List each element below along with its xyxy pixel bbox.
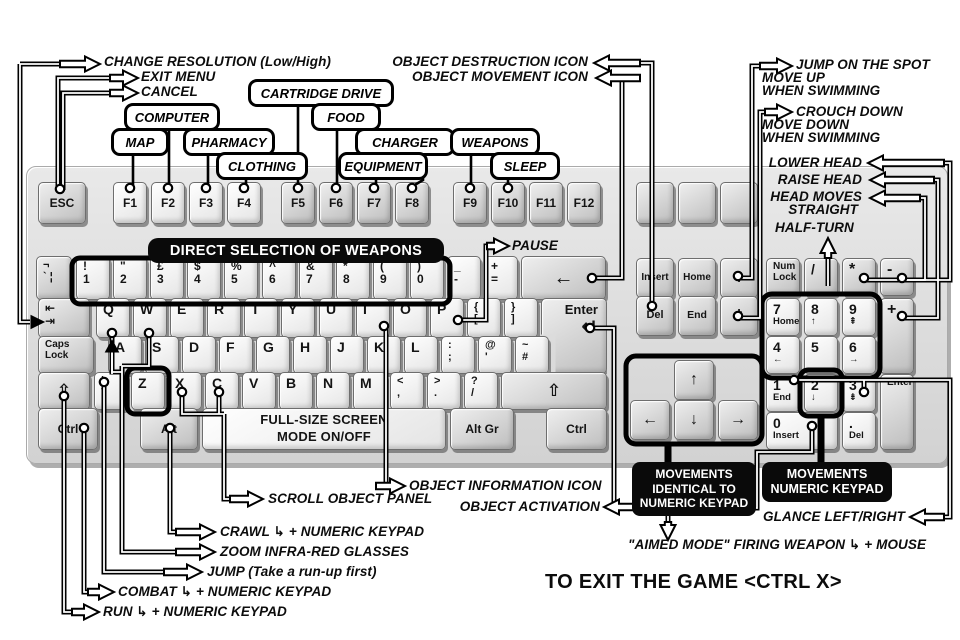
black-box-movements-identical-line-1: MOVEMENTS	[655, 467, 732, 481]
key-num-9-legend-2: ⇞	[849, 317, 875, 327]
callout-sleep: SLEEP	[490, 152, 560, 180]
key-numlock: NumLock	[766, 258, 800, 296]
key-num-decimal: .Del	[842, 412, 876, 450]
key-f5-legend-1: F5	[291, 197, 305, 210]
key-semicolon: :;	[441, 336, 475, 374]
key-j-legend-1: J	[337, 340, 363, 355]
label-when-swimming-2: WHEN SWIMMING	[762, 131, 880, 146]
key-arrow-up: ↑	[674, 360, 714, 400]
key-num-1-legend-1: 1	[773, 378, 799, 393]
key-delete-legend-1: Del	[646, 310, 663, 322]
key-tab-legend-1: ⇤	[45, 302, 89, 315]
key-2: "2	[113, 256, 147, 300]
key-t-legend-1: T	[251, 302, 277, 317]
key-num-5-legend-1: 5	[811, 340, 837, 355]
key-f10: F10	[491, 182, 525, 224]
key-home-legend-1: Home	[683, 273, 711, 284]
key-lbracket-legend-2: [	[474, 314, 500, 326]
key-9-legend-2: 9	[380, 273, 406, 286]
key-f10-legend-1: F10	[498, 197, 519, 210]
key-grave: ¬` ¦	[36, 256, 72, 300]
key-u-legend-1: U	[326, 302, 352, 317]
key-f11: F11	[529, 182, 563, 224]
key-m: M	[353, 372, 387, 410]
key-u: U	[319, 298, 353, 338]
key-num-4-legend-2: ←	[773, 355, 799, 365]
key-f8-legend-1: F8	[405, 197, 419, 210]
key-g-legend-1: G	[263, 340, 289, 355]
key-s-legend-1: S	[152, 340, 178, 355]
key-3-legend-2: 3	[157, 273, 183, 286]
key-rbracket: }]	[504, 298, 538, 338]
key-q: Q	[96, 298, 130, 338]
key-a: A	[108, 336, 142, 374]
key-i: I	[356, 298, 390, 338]
key-c: C	[205, 372, 239, 410]
key-num-9: 9⇞	[842, 298, 876, 336]
label-cancel: CANCEL	[141, 85, 198, 100]
key-grave-legend-1: ¬	[43, 260, 71, 272]
key-p: P	[430, 298, 464, 338]
key-minus-legend-2: -	[454, 273, 480, 286]
label-pause: PAUSE	[512, 239, 558, 254]
key-blank-2	[678, 182, 716, 224]
key-x: X	[168, 372, 202, 410]
key-f1: F1	[113, 182, 147, 224]
key-h-legend-1: H	[300, 340, 326, 355]
key-arrow-down-legend-1: ↓	[690, 412, 698, 429]
key-comma: <,	[390, 372, 424, 410]
key-rctrl: Ctrl	[546, 408, 607, 450]
key-7-legend-2: 7	[306, 273, 332, 286]
key-hash: ~#	[515, 336, 549, 374]
key-num-2-legend-2: ↓	[811, 393, 837, 403]
key-6-legend-2: 6	[269, 273, 295, 286]
key-num-multiply: *	[842, 258, 876, 296]
key-f9-legend-1: F9	[463, 197, 477, 210]
key-num-2: 2↓	[804, 374, 838, 412]
key-num-add: +	[880, 298, 914, 374]
key-num-3-legend-2: ⇟	[849, 393, 875, 403]
key-n-legend-1: N	[323, 376, 349, 391]
key-tab-legend-2: ⇥	[45, 315, 89, 328]
key-tab: ⇤⇥	[38, 298, 90, 338]
key-semicolon-legend-1: :	[448, 340, 474, 352]
key-esc: ESC	[38, 182, 86, 224]
key-d-legend-1: D	[189, 340, 215, 355]
key-1-legend-2: 1	[83, 273, 109, 286]
key-space: FULL-SIZE SCREENMODE ON/OFF	[202, 408, 446, 450]
key-equals: +=	[484, 256, 518, 300]
label-object-destruction: OBJECT DESTRUCTION ICON	[388, 55, 588, 70]
key-a-legend-1: A	[115, 340, 141, 355]
key-f12-legend-1: F12	[574, 197, 595, 210]
key-f4: F4	[227, 182, 261, 224]
key-h: H	[293, 336, 327, 374]
key-f3: F3	[189, 182, 223, 224]
key-l-legend-1: L	[411, 340, 437, 355]
key-c-legend-1: C	[212, 376, 238, 391]
key-f3-legend-1: F3	[199, 197, 213, 210]
key-o-legend-1: O	[400, 302, 426, 317]
key-equals-legend-1: +	[491, 260, 517, 273]
key-home: Home	[678, 258, 716, 298]
key-f8: F8	[395, 182, 429, 224]
key-num-divide: /	[804, 258, 838, 296]
callout-clothing: CLOTHING	[216, 152, 308, 180]
label-crawl: CRAWL ↳ + NUMERIC KEYPAD	[220, 525, 424, 540]
key-0-legend-2: 0	[417, 273, 443, 286]
key-k-legend-1: K	[374, 340, 400, 355]
key-num-3-legend-1: 3	[849, 378, 875, 393]
key-pagedown: ⇟	[720, 296, 758, 336]
key-num-subtract: -	[880, 258, 914, 296]
key-o: O	[393, 298, 427, 338]
key-2-legend-1: "	[120, 260, 146, 273]
key-arrow-right-legend-1: →	[730, 412, 746, 429]
key-numlock-legend-2: Lock	[773, 273, 799, 284]
label-jump: JUMP (Take a run-up first)	[207, 565, 377, 580]
label-raise-head: RAISE HEAD	[712, 173, 862, 188]
callout-food: FOOD	[311, 103, 381, 131]
key-pageup: ⇞	[720, 258, 758, 298]
label-combat: COMBAT ↳ + NUMERIC KEYPAD	[118, 585, 331, 600]
key-period-legend-1: >	[434, 376, 460, 388]
label-exit-menu: EXIT MENU	[141, 70, 215, 85]
key-b-legend-1: B	[286, 376, 312, 391]
black-box-movements-numeric-line-2: NUMERIC KEYPAD	[771, 482, 884, 497]
key-quote-legend-2: '	[485, 352, 511, 364]
label-lower-head: LOWER HEAD	[712, 156, 862, 171]
key-quote-legend-1: @	[485, 340, 511, 352]
key-num-6-legend-1: 6	[849, 340, 875, 355]
key-grave-legend-2: ` ¦	[43, 272, 71, 284]
key-v-legend-1: V	[249, 376, 275, 391]
key-backslash: |\	[94, 372, 128, 410]
key-rshift-legend-1: ⇧	[547, 382, 561, 400]
key-backslash-legend-1: |	[101, 376, 127, 388]
key-pageup-legend-1: ⇞	[733, 270, 746, 286]
key-e-legend-1: E	[177, 302, 203, 317]
key-lshift: ⇧	[38, 372, 90, 410]
key-f2-legend-1: F2	[161, 197, 175, 210]
key-pagedown-legend-1: ⇟	[733, 308, 746, 324]
key-d: D	[182, 336, 216, 374]
key-s: S	[145, 336, 179, 374]
label-scroll-object-panel: SCROLL OBJECT PANEL	[268, 492, 432, 507]
label-when-swimming-1: WHEN SWIMMING	[762, 84, 880, 99]
key-capslock: Caps Lock	[38, 336, 94, 374]
key-comma-legend-2: ,	[397, 388, 423, 400]
key-num-0-legend-2: Insert	[773, 431, 837, 441]
key-f7: F7	[357, 182, 391, 224]
key-f-legend-1: F	[226, 340, 252, 355]
key-lbracket-legend-1: {	[474, 302, 500, 314]
key-f2: F2	[151, 182, 185, 224]
key-j: J	[330, 336, 364, 374]
key-f4-legend-1: F4	[237, 197, 251, 210]
key-num-7-legend-2: Home	[773, 317, 799, 327]
key-z: Z	[131, 372, 165, 410]
key-slash-legend-1: ?	[471, 376, 497, 388]
callout-computer: COMPUTER	[124, 103, 220, 131]
black-box-movements-numeric-line-1: MOVEMENTS	[787, 467, 868, 482]
key-2-legend-2: 2	[120, 273, 146, 286]
key-num-6: 6→	[842, 336, 876, 374]
key-num-6-legend-2: →	[849, 355, 875, 365]
key-num-0-legend-1: 0	[773, 416, 837, 431]
key-5-legend-2: 5	[231, 273, 257, 286]
key-altgr-legend-1: Alt Gr	[465, 423, 498, 436]
key-x-legend-1: X	[175, 376, 201, 391]
key-e: E	[170, 298, 204, 338]
key-space-legend-2: MODE ON/OFF	[277, 429, 371, 446]
key-num-5: 5	[804, 336, 838, 374]
key-end-legend-1: End	[687, 310, 707, 321]
key-backspace-legend-1: ←	[554, 268, 574, 289]
key-num-0: 0Insert	[766, 412, 838, 450]
key-lctrl: Ctrl	[38, 408, 98, 450]
key-num-4-legend-1: 4	[773, 340, 799, 355]
key-blank-1	[636, 182, 674, 224]
key-end: End	[678, 296, 716, 336]
label-change-resolution: CHANGE RESOLUTION (Low/High)	[104, 55, 331, 70]
key-arrow-right: →	[718, 400, 758, 440]
key-r-legend-1: R	[214, 302, 240, 317]
key-8-legend-2: 8	[343, 273, 369, 286]
label-zoom-infra-red: ZOOM INFRA-RED GLASSES	[220, 545, 409, 560]
key-i-legend-1: I	[363, 302, 389, 317]
label-straight: STRAIGHT	[712, 203, 858, 218]
key-backslash-legend-2: \	[101, 388, 127, 400]
black-box-movements-numeric: MOVEMENTSNUMERIC KEYPAD	[762, 462, 892, 502]
key-b: B	[279, 372, 313, 410]
key-space-legend-1: FULL-SIZE SCREEN	[260, 412, 387, 429]
key-f5: F5	[281, 182, 315, 224]
key-slash-legend-2: /	[471, 388, 497, 400]
key-num-2-legend-1: 2	[811, 378, 837, 393]
key-numlock-legend-1: Num	[773, 262, 799, 273]
key-insert-legend-1: Insert	[641, 273, 668, 284]
key-l: L	[404, 336, 438, 374]
key-t: T	[244, 298, 278, 338]
key-arrow-left: ←	[630, 400, 670, 440]
key-slash: ?/	[464, 372, 498, 410]
key-f1-legend-1: F1	[123, 197, 137, 210]
key-equals-legend-2: =	[491, 273, 517, 286]
label-object-movement: OBJECT MOVEMENT ICON	[388, 70, 588, 85]
key-4-legend-2: 4	[194, 273, 220, 286]
callout-equipment: EQUIPMENT	[338, 152, 428, 180]
key-f: F	[219, 336, 253, 374]
key-num-4: 4←	[766, 336, 800, 374]
key-num-decimal-legend-2: Del	[849, 431, 875, 441]
key-num-add-legend-1: +	[887, 302, 913, 319]
key-y: Y	[281, 298, 315, 338]
key-num-subtract-legend-1: -	[887, 262, 913, 279]
black-box-movements-identical: MOVEMENTSIDENTICAL TONUMERIC KEYPAD	[632, 462, 756, 516]
label-glance-left-right: GLANCE LEFT/RIGHT	[755, 510, 905, 525]
key-rbracket-legend-1: }	[511, 302, 537, 314]
callout-map: MAP	[111, 128, 169, 156]
key-num-multiply-legend-1: *	[849, 262, 875, 279]
key-capslock-legend-1: Caps Lock	[45, 340, 93, 361]
black-box-movements-identical-line-3: NUMERIC KEYPAD	[640, 496, 748, 510]
key-hash-legend-1: ~	[522, 340, 548, 352]
key-num-1: 1End	[766, 374, 800, 412]
black-box-movements-identical-line-2: IDENTICAL TO	[652, 482, 736, 496]
key-w: W	[133, 298, 167, 338]
key-insert: Insert	[636, 258, 674, 298]
key-k: K	[367, 336, 401, 374]
key-lbracket: {[	[467, 298, 501, 338]
key-lshift-legend-1: ⇧	[57, 382, 71, 400]
key-altgr: Alt Gr	[450, 408, 514, 450]
key-q-legend-1: Q	[103, 302, 129, 317]
label-aimed-mode: "AIMED MODE" FIRING WEAPON ↳ + MOUSE	[628, 538, 926, 553]
key-period-legend-2: .	[434, 388, 460, 400]
key-f9: F9	[453, 182, 487, 224]
key-lctrl-legend-1: Ctrl	[58, 423, 79, 436]
key-alt-legend-1: Alt	[161, 423, 177, 436]
key-semicolon-legend-2: ;	[448, 352, 474, 364]
key-f7-legend-1: F7	[367, 197, 381, 210]
key-n: N	[316, 372, 350, 410]
key-alt: Alt	[140, 408, 198, 450]
key-num-7: 7Home	[766, 298, 800, 336]
key-y-legend-1: Y	[288, 302, 314, 317]
key-w-legend-1: W	[140, 302, 166, 317]
key-f12: F12	[567, 182, 601, 224]
label-exit-game: TO EXIT THE GAME <CTRL X>	[545, 571, 842, 593]
key-1: !1	[76, 256, 110, 300]
key-num-9-legend-1: 9	[849, 302, 875, 317]
key-rshift: ⇧	[501, 372, 607, 410]
key-minus: _-	[447, 256, 481, 300]
label-object-activation: OBJECT ACTIVATION	[440, 500, 600, 515]
key-p-legend-1: P	[437, 302, 463, 317]
key-num-1-legend-2: End	[773, 393, 799, 403]
key-z-legend-1: Z	[138, 376, 164, 391]
key-hash-legend-2: #	[522, 352, 548, 364]
key-num-enter-legend-1: Enter	[887, 378, 913, 389]
key-num-8: 8↑	[804, 298, 838, 336]
key-arrow-up-legend-1: ↑	[690, 372, 698, 389]
key-num-divide-legend-1: /	[811, 262, 837, 277]
key-num-8-legend-2: ↑	[811, 317, 837, 327]
key-minus-legend-1: _	[454, 260, 480, 273]
key-period: >.	[427, 372, 461, 410]
key-num-decimal-legend-1: .	[849, 416, 875, 431]
label-run: RUN ↳ + NUMERIC KEYPAD	[103, 605, 287, 620]
key-comma-legend-1: <	[397, 376, 423, 388]
key-num-enter: Enter	[880, 374, 914, 450]
label-half-turn: HALF-TURN	[775, 221, 854, 236]
key-m-legend-1: M	[360, 376, 386, 391]
key-r: R	[207, 298, 241, 338]
direct-selection-of-weapons-bar: DIRECT SELECTION OF WEAPONS	[148, 238, 444, 263]
key-quote: @'	[478, 336, 512, 374]
key-rctrl-legend-1: Ctrl	[566, 423, 587, 436]
key-backspace: ←	[521, 256, 606, 300]
keyboard-controls-diagram: DIRECT SELECTION OF WEAPONS ESCF1F2F3F4F…	[0, 0, 960, 640]
key-enter-legend-1: Enter	[542, 303, 598, 317]
key-num-8-legend-1: 8	[811, 302, 837, 317]
key-arrow-down: ↓	[674, 400, 714, 440]
key-arrow-left-legend-1: ←	[642, 412, 658, 429]
key-f6-legend-1: F6	[329, 197, 343, 210]
key-v: V	[242, 372, 276, 410]
key-g: G	[256, 336, 290, 374]
key-1-legend-1: !	[83, 260, 109, 273]
key-f11-legend-1: F11	[536, 197, 556, 210]
key-num-3: 3⇟	[842, 374, 876, 412]
key-rbracket-legend-2: ]	[511, 314, 537, 326]
label-object-information: OBJECT INFORMATION ICON	[409, 479, 602, 494]
key-delete: Del	[636, 296, 674, 336]
key-f6: F6	[319, 182, 353, 224]
key-esc-legend-1: ESC	[50, 197, 75, 210]
key-num-7-legend-1: 7	[773, 302, 799, 317]
